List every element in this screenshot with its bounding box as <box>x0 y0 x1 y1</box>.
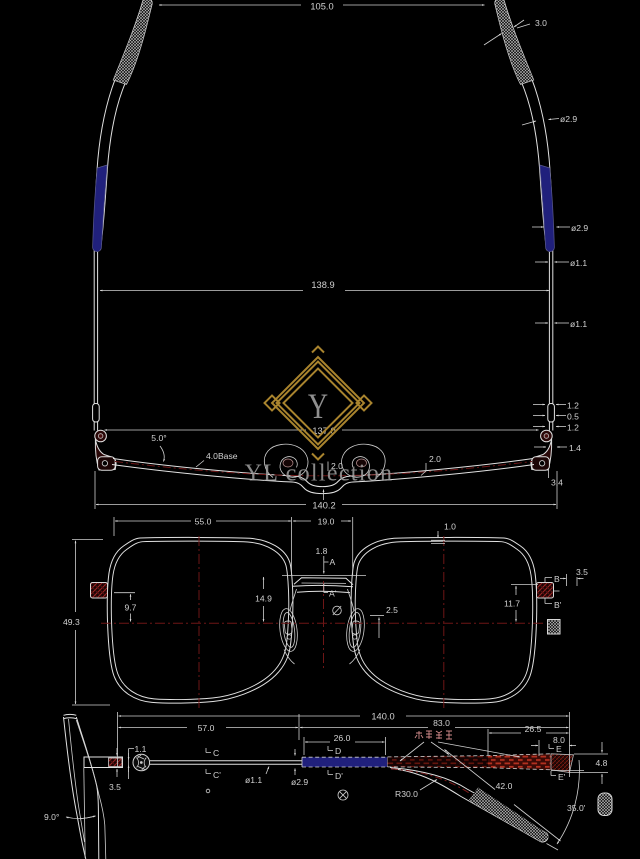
svg-text:26.0: 26.0 <box>334 733 351 743</box>
svg-text:138.9: 138.9 <box>311 280 334 290</box>
svg-text:ø2.9: ø2.9 <box>560 114 577 124</box>
svg-text:49.3: 49.3 <box>63 617 80 627</box>
svg-text:0.5: 0.5 <box>567 412 579 422</box>
svg-text:3.0: 3.0 <box>535 18 547 28</box>
svg-text:35.0': 35.0' <box>567 803 586 813</box>
svg-text:C: C <box>213 748 219 758</box>
svg-text:ø1.1: ø1.1 <box>245 775 262 785</box>
svg-text:140.0: 140.0 <box>371 712 394 722</box>
svg-text:11.7: 11.7 <box>504 599 520 609</box>
svg-text:B: B <box>554 574 560 584</box>
svg-text:A': A' <box>329 589 337 599</box>
svg-text:E': E' <box>558 772 566 782</box>
svg-text:9.0°: 9.0° <box>44 812 59 822</box>
svg-text:42.0: 42.0 <box>496 781 513 791</box>
svg-text:2.0: 2.0 <box>429 454 441 464</box>
svg-text:105.0: 105.0 <box>310 2 333 12</box>
svg-text:57.0: 57.0 <box>198 723 215 733</box>
svg-text:26.5: 26.5 <box>525 724 542 734</box>
svg-text:5.0°: 5.0° <box>151 433 166 443</box>
svg-text:83.0: 83.0 <box>433 718 450 728</box>
svg-text:ø1.1: ø1.1 <box>570 258 587 268</box>
svg-text:D: D <box>335 746 341 756</box>
svg-text:1.2: 1.2 <box>567 423 579 433</box>
svg-text:B': B' <box>554 600 562 610</box>
svg-text:55.0: 55.0 <box>195 517 212 527</box>
svg-text:3.5: 3.5 <box>109 782 121 792</box>
svg-text:4.8: 4.8 <box>596 758 608 768</box>
svg-text:2.5: 2.5 <box>386 605 398 615</box>
svg-text:ø1.1: ø1.1 <box>570 319 587 329</box>
svg-text:9.7: 9.7 <box>125 603 137 613</box>
svg-text:1.8: 1.8 <box>316 546 328 556</box>
svg-text:3.4: 3.4 <box>551 478 563 488</box>
svg-text:Y: Y <box>308 386 328 426</box>
svg-text:D': D' <box>335 771 343 781</box>
svg-text:140.2: 140.2 <box>312 501 335 511</box>
svg-text:8.0: 8.0 <box>553 735 565 745</box>
svg-text:4.0Base: 4.0Base <box>206 451 238 461</box>
svg-text:14.9: 14.9 <box>255 594 272 604</box>
svg-text:R30.0: R30.0 <box>395 789 418 799</box>
svg-text:1.4: 1.4 <box>569 443 581 453</box>
svg-text:1.1: 1.1 <box>135 744 147 754</box>
svg-text:YL collection: YL collection <box>245 461 394 487</box>
svg-text:1.0: 1.0 <box>444 522 456 532</box>
svg-text:E: E <box>556 744 562 754</box>
svg-text:A: A <box>330 557 336 567</box>
svg-text:3.5: 3.5 <box>576 567 588 577</box>
svg-text:1.2: 1.2 <box>567 401 579 411</box>
svg-text:ø2.9: ø2.9 <box>291 777 308 787</box>
svg-text:19.0: 19.0 <box>318 517 335 527</box>
svg-text:C': C' <box>213 770 221 780</box>
svg-text:ø2.9: ø2.9 <box>571 223 588 233</box>
